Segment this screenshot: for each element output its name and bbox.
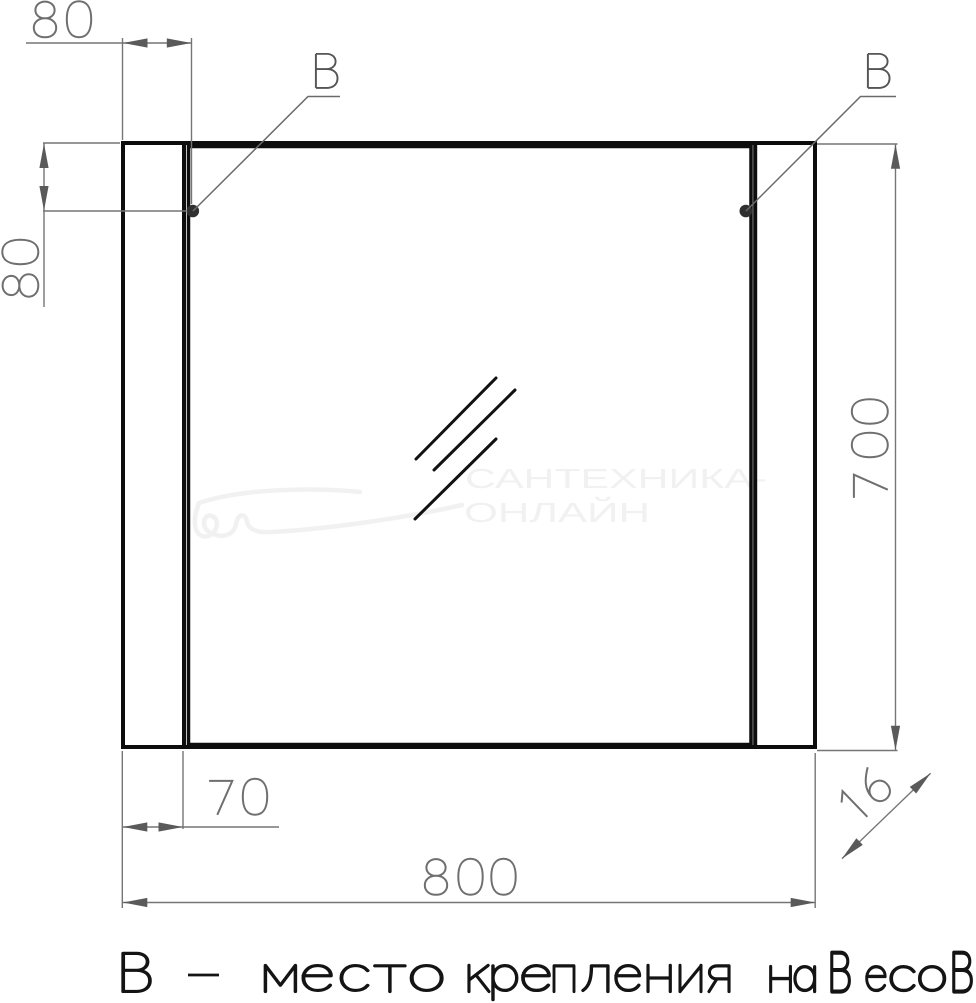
svg-text:САНТЕХНИКА-: САНТЕХНИКА- [465,463,767,494]
svg-text:ОНЛАЙН: ОНЛАЙН [464,497,650,528]
